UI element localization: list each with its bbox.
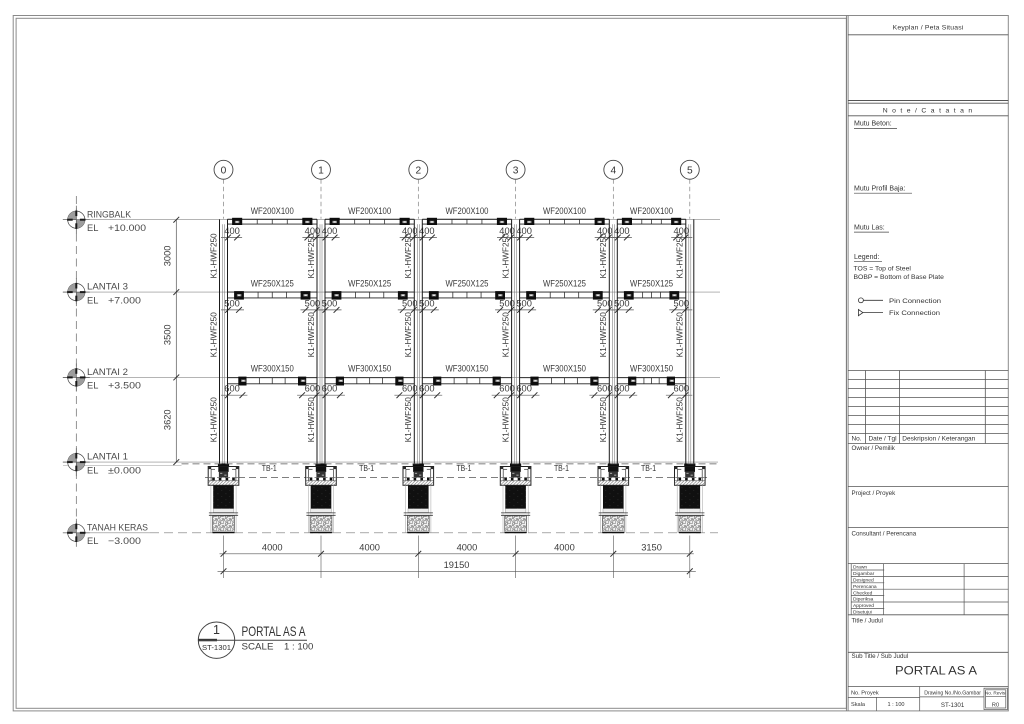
svg-text:SCALE: SCALE	[242, 642, 274, 653]
svg-text:400: 400	[419, 226, 435, 236]
svg-text:WF300X150: WF300X150	[543, 364, 586, 374]
svg-text:K1-HWF250: K1-HWF250	[598, 312, 608, 357]
svg-text:TB-1: TB-1	[262, 464, 277, 473]
svg-text:600: 600	[322, 384, 338, 394]
svg-text:PORTAL AS A: PORTAL AS A	[242, 624, 307, 639]
svg-text:4000: 4000	[262, 542, 283, 552]
svg-text:±0.000: ±0.000	[108, 465, 141, 475]
svg-text:500: 500	[419, 298, 435, 308]
svg-text:Keyplan / Peta Situasi: Keyplan / Peta Situasi	[893, 25, 964, 32]
svg-text:−3.000: −3.000	[108, 536, 141, 546]
svg-text:WF300X150: WF300X150	[445, 364, 488, 374]
svg-text:19150: 19150	[444, 560, 470, 570]
svg-text:500: 500	[614, 298, 630, 308]
svg-text:Title / Judul: Title / Judul	[852, 618, 883, 625]
svg-text:K1-HWF250: K1-HWF250	[306, 312, 316, 357]
svg-text:TOS = Top of Steel: TOS = Top of Steel	[854, 265, 912, 272]
svg-text:Mutu Beton:: Mutu Beton:	[854, 121, 892, 128]
svg-text:BOBP = Bottom of Base Pla: BOBP = Bottom of Base Plate	[854, 274, 945, 281]
svg-text:4000: 4000	[457, 542, 478, 552]
svg-text:WF200X100: WF200X100	[543, 206, 586, 216]
svg-text:TANAH KERAS: TANAH KERAS	[87, 522, 148, 532]
svg-text:600: 600	[516, 384, 532, 394]
svg-text:K1-HWF250: K1-HWF250	[208, 233, 218, 278]
svg-text:WF300X150: WF300X150	[348, 364, 391, 374]
svg-text:4000: 4000	[554, 542, 575, 552]
svg-text:K1-HWF250: K1-HWF250	[403, 312, 413, 357]
svg-text:WF200X100: WF200X100	[630, 206, 673, 216]
svg-text:R0: R0	[992, 703, 999, 709]
svg-text:+7.000: +7.000	[108, 295, 141, 305]
svg-text:600: 600	[419, 384, 435, 394]
svg-text:Skala: Skala	[851, 702, 866, 708]
svg-text:LANTAI 3: LANTAI 3	[87, 282, 128, 292]
svg-text:0: 0	[221, 165, 227, 176]
svg-text:1: 1	[213, 623, 220, 637]
svg-text:WF250X125: WF250X125	[630, 278, 673, 288]
svg-text:EL: EL	[87, 465, 98, 475]
svg-text:Fix Connection: Fix Connection	[889, 310, 940, 317]
svg-text:500: 500	[673, 298, 689, 308]
svg-text:5: 5	[687, 165, 693, 176]
svg-text:K1-HWF250: K1-HWF250	[500, 397, 510, 442]
svg-text:3620: 3620	[163, 409, 173, 430]
svg-text:K1-HWF250: K1-HWF250	[500, 233, 510, 278]
svg-text:TB-1: TB-1	[554, 464, 569, 473]
svg-text:Owner / Pemilik: Owner / Pemilik	[852, 445, 896, 452]
svg-text:+10.000: +10.000	[108, 223, 146, 233]
svg-text:No. Revisi: No. Revisi	[985, 690, 1006, 695]
svg-text:400: 400	[224, 226, 240, 236]
svg-text:EL: EL	[87, 536, 98, 546]
svg-text:K1-HWF250: K1-HWF250	[208, 397, 218, 442]
svg-text:WF200X100: WF200X100	[445, 206, 488, 216]
svg-text:ST-1301: ST-1301	[202, 645, 231, 652]
svg-text:1 : 100: 1 : 100	[284, 642, 313, 653]
svg-text:400: 400	[322, 226, 338, 236]
svg-text:WF200X100: WF200X100	[348, 206, 391, 216]
svg-text:K1-HWF250: K1-HWF250	[598, 397, 608, 442]
svg-text:K1-HWF250: K1-HWF250	[306, 233, 316, 278]
svg-text:Sub Title / Sub Judul: Sub Title / Sub Judul	[852, 653, 909, 660]
svg-text:500: 500	[597, 298, 613, 308]
svg-text:Mutu Las:: Mutu Las:	[854, 224, 885, 231]
svg-text:3500: 3500	[163, 324, 173, 345]
svg-text:+3.500: +3.500	[108, 381, 141, 391]
svg-text:K1-HWF250: K1-HWF250	[675, 233, 685, 278]
svg-text:3000: 3000	[163, 246, 173, 267]
svg-text:EL: EL	[87, 295, 98, 305]
svg-text:TB-1: TB-1	[641, 464, 656, 473]
svg-text:500: 500	[322, 298, 338, 308]
svg-text:WF300X150: WF300X150	[630, 364, 673, 374]
svg-text:ST-1301: ST-1301	[941, 702, 965, 709]
svg-text:500: 500	[516, 298, 532, 308]
svg-text:WF250X125: WF250X125	[445, 278, 488, 288]
svg-text:No. Proyek: No. Proyek	[851, 690, 879, 696]
svg-text:Project / Proyek: Project / Proyek	[852, 490, 897, 497]
svg-text:500: 500	[402, 298, 418, 308]
svg-text:TB-1: TB-1	[456, 464, 471, 473]
svg-text:No.: No.	[851, 436, 861, 443]
svg-text:RINGBALK: RINGBALK	[87, 209, 132, 219]
svg-text:500: 500	[224, 298, 240, 308]
svg-text:400: 400	[614, 226, 630, 236]
svg-text:TB-1: TB-1	[359, 464, 374, 473]
svg-text:4: 4	[610, 165, 616, 176]
svg-text:K1-HWF250: K1-HWF250	[208, 312, 218, 357]
svg-text:Mutu Profil Baja:: Mutu Profil Baja:	[854, 185, 905, 192]
svg-text:WF300X150: WF300X150	[251, 364, 294, 374]
svg-text:K1-HWF250: K1-HWF250	[675, 397, 685, 442]
svg-text:600: 600	[305, 384, 321, 394]
svg-text:1 : 100: 1 : 100	[887, 702, 904, 708]
svg-text:3150: 3150	[641, 542, 662, 552]
svg-text:600: 600	[614, 384, 630, 394]
svg-text:4000: 4000	[359, 542, 380, 552]
svg-text:2: 2	[415, 165, 421, 176]
svg-text:K1-HWF250: K1-HWF250	[500, 312, 510, 357]
svg-text:Drawing No./No.Gambar: Drawing No./No.Gambar	[924, 690, 981, 696]
svg-text:Date / Tgl: Date / Tgl	[868, 436, 897, 443]
svg-text:500: 500	[499, 298, 515, 308]
svg-text:Legend:: Legend:	[854, 254, 879, 261]
svg-text:EL: EL	[87, 381, 98, 391]
svg-text:600: 600	[224, 384, 240, 394]
svg-text:Pin Connection: Pin Connection	[889, 298, 941, 305]
svg-text:K1-HWF250: K1-HWF250	[403, 397, 413, 442]
svg-text:K1-HWF250: K1-HWF250	[675, 312, 685, 357]
svg-text:WF250X125: WF250X125	[543, 278, 586, 288]
svg-text:Deskripsion / Keterangan: Deskripsion / Keterangan	[902, 436, 975, 443]
svg-text:K1-HWF250: K1-HWF250	[598, 233, 608, 278]
svg-text:600: 600	[597, 384, 613, 394]
svg-text:WF200X100: WF200X100	[251, 206, 294, 216]
svg-text:600: 600	[402, 384, 418, 394]
svg-text:1: 1	[318, 165, 324, 176]
svg-text:LANTAI 2: LANTAI 2	[87, 367, 128, 377]
svg-text:500: 500	[305, 298, 321, 308]
svg-text:600: 600	[673, 384, 689, 394]
svg-text:600: 600	[499, 384, 515, 394]
svg-text:PORTAL AS A: PORTAL AS A	[895, 664, 978, 678]
svg-text:Consultant / Perencana: Consultant / Perencana	[852, 531, 917, 538]
svg-text:N o t e / C a t a t a n: N o t e / C a t a t a n	[883, 107, 974, 114]
svg-text:EL: EL	[87, 223, 98, 233]
svg-text:LANTAI 1: LANTAI 1	[87, 452, 128, 462]
svg-text:K1-HWF250: K1-HWF250	[306, 397, 316, 442]
svg-text:WF250X125: WF250X125	[348, 278, 391, 288]
svg-text:3: 3	[513, 165, 519, 176]
svg-text:WF250X125: WF250X125	[251, 278, 294, 288]
svg-text:400: 400	[516, 226, 532, 236]
svg-text:K1-HWF250: K1-HWF250	[403, 233, 413, 278]
